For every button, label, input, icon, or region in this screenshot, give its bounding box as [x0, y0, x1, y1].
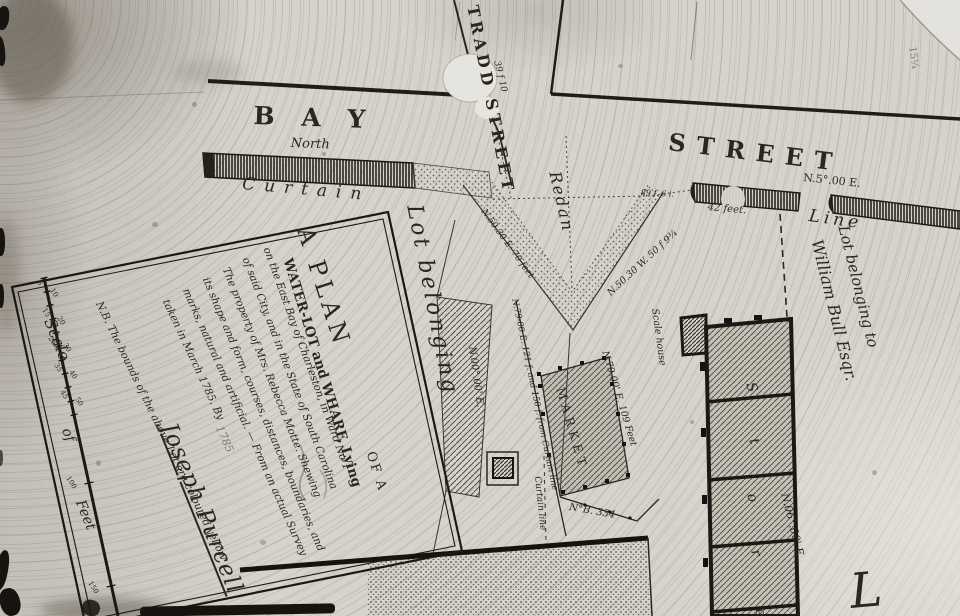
crease [0, 92, 205, 100]
crease [691, 2, 697, 60]
dashed-boundary [780, 214, 787, 317]
foxing-spot [260, 540, 266, 545]
scale-tick-label: 40 [67, 369, 79, 381]
dimension-89feet-label: 89 f. 6 i. [641, 189, 675, 199]
big-letter-l: L [848, 565, 884, 616]
bay-street-north-edge-right [551, 94, 960, 119]
bay-street-label: B A Y [253, 103, 375, 132]
bay-street-north-edge-left [208, 81, 479, 96]
foxing-spot [322, 152, 326, 156]
tradd-street-right-edge [551, 0, 563, 94]
foxing-spot [618, 64, 623, 68]
north-label: North [291, 137, 330, 151]
pencil-corner-mark: 15¼ [906, 46, 919, 70]
foxing-spot [872, 470, 877, 475]
stippled-water [368, 541, 651, 616]
foxing-spot [152, 222, 158, 227]
scale-house-building [681, 315, 706, 355]
scale-100-label: 100 [64, 475, 78, 491]
scale-tick-label: 10 [48, 287, 60, 299]
foxing-spot [690, 420, 694, 424]
scale-150-label: 150 [86, 580, 100, 596]
scale-tick-label: 5 [35, 279, 44, 287]
scale-tick-label: 50 [73, 396, 85, 408]
foxing-spot [96, 460, 101, 466]
foxing-spot [192, 102, 197, 107]
map-scan: S t o r e 5 10 15 20 25 30 [0, 0, 960, 616]
